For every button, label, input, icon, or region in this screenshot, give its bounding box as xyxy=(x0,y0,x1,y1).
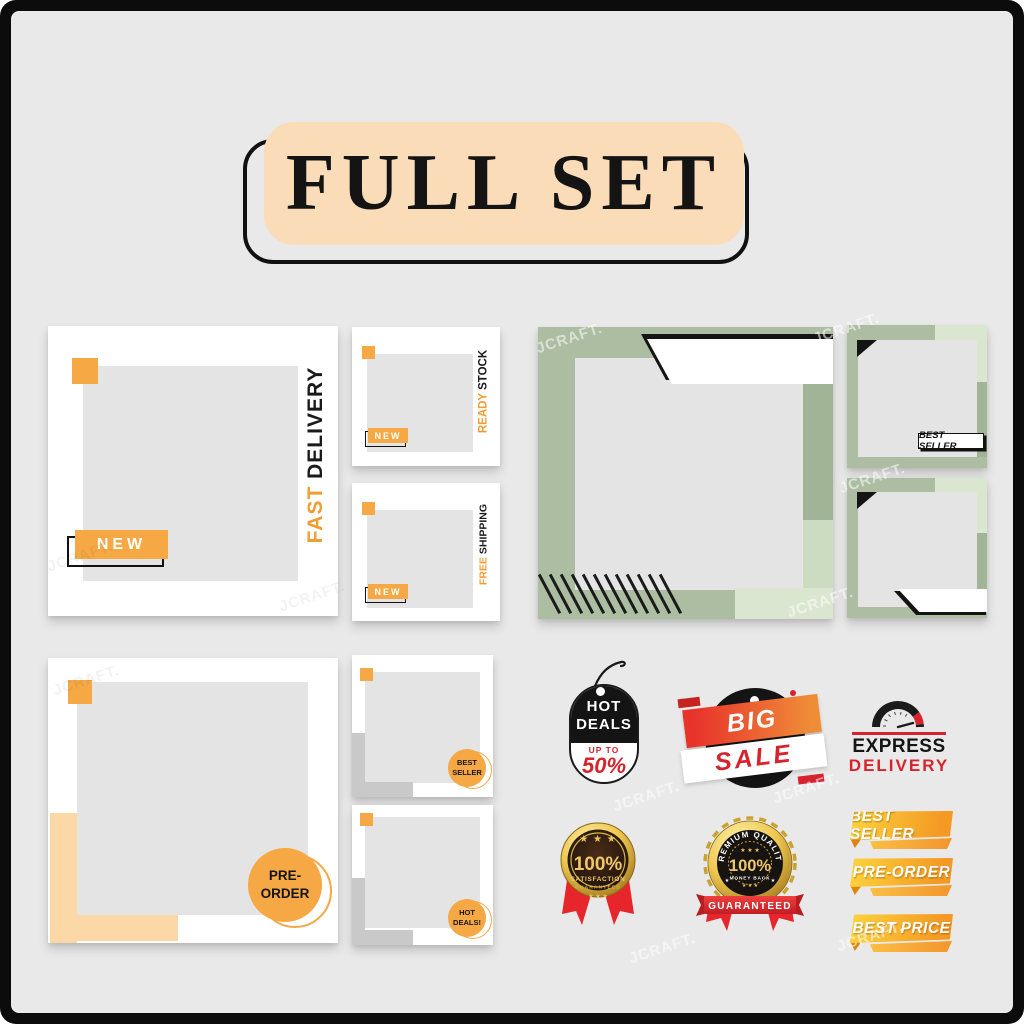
express-word1: EXPRESS xyxy=(845,736,953,758)
satisfaction-line2: GUARANTEED xyxy=(575,885,621,891)
template-card-fast-delivery: FAST DELIVERY NEW xyxy=(48,326,338,616)
satisfaction-line1: SATISFACTION xyxy=(571,876,626,883)
template-card-free-shipping: FREE SHIPPING NEW xyxy=(352,483,500,621)
express-delivery-badge: EXPRESS DELIVERY xyxy=(845,695,953,775)
circle-line2: SELLER xyxy=(452,768,482,778)
ribbon-label: BEST SELLER xyxy=(850,811,953,840)
label-accent-word: FREE xyxy=(478,557,490,585)
poster-canvas: FULL SET FAST DELIVERY NEW READY STOCK N… xyxy=(0,0,1024,1024)
stars-top: ★ ★ ★ xyxy=(740,847,759,854)
vertical-label: FREE SHIPPING xyxy=(478,490,491,600)
ribbon-label: PRE-ORDER xyxy=(850,858,953,887)
circle-line2: ORDER xyxy=(261,885,310,903)
premium-banner-text: GUARANTEED xyxy=(708,901,792,912)
ribbon-pre-order: PRE-ORDER xyxy=(848,855,958,901)
tag-knot-icon xyxy=(596,687,605,696)
best-seller-label: BEST SELLER xyxy=(918,433,984,449)
speedometer-icon xyxy=(862,695,934,732)
tag-line2: DEALS xyxy=(571,716,637,734)
red-underline xyxy=(852,732,946,735)
red-dot-icon xyxy=(790,690,796,696)
orange-square-accent xyxy=(360,668,373,681)
big-sale-badge: BIG SALE xyxy=(680,676,830,791)
circle-line1: BEST xyxy=(457,758,477,768)
gray-l-horizontal xyxy=(352,782,413,797)
stars-bottom: ★ ★ ★ xyxy=(742,883,759,889)
premium-value: 100% xyxy=(729,857,772,875)
premium-sub: MONEY BACK xyxy=(730,876,771,882)
title-plate: FULL SET xyxy=(264,122,744,245)
banner-blank xyxy=(647,339,833,384)
vertical-label: READY STOCK xyxy=(478,337,491,447)
express-word2: DELIVERY xyxy=(845,756,953,776)
orange-square-accent xyxy=(362,502,375,515)
vertical-label: FAST DELIVERY xyxy=(304,360,328,550)
template-card-pre-order: PRE- ORDER xyxy=(48,658,338,943)
pre-order-circle: PRE- ORDER xyxy=(248,848,322,922)
stars-top: ★ ★ ★ xyxy=(579,834,616,845)
tag-top: HOT DEALS xyxy=(571,686,637,743)
label-dark-word: DELIVERY xyxy=(304,367,327,479)
red-accent xyxy=(678,697,701,709)
template-card-green-best-seller: BEST SELLER xyxy=(847,325,987,468)
green-strip-light xyxy=(803,520,833,595)
stars-bottom: ★ ★ ★ xyxy=(588,893,607,900)
hot-deals-tag: HOT DEALS UP TO 50% xyxy=(569,684,639,784)
label-accent-word: READY xyxy=(478,393,490,433)
ribbon-tail xyxy=(870,885,952,896)
best-seller-circle: BEST SELLER xyxy=(448,749,486,787)
orange-square-accent xyxy=(362,346,375,359)
hot-deals-circle: HOT DEALS! xyxy=(448,899,486,937)
satisfaction-guaranteed-badge: ★ ★ ★ 100% SATISFACTION GUARANTEED ★ ★ ★ xyxy=(553,808,643,936)
circle-line1: HOT xyxy=(459,908,475,918)
star-icon: ★ xyxy=(771,878,776,884)
ribbon-tail xyxy=(870,941,952,952)
image-placeholder xyxy=(575,358,803,590)
orange-square-accent xyxy=(72,358,98,384)
circle-line1: PRE- xyxy=(269,867,301,885)
satisfaction-value: 100% xyxy=(574,854,623,875)
template-card-green-large xyxy=(538,327,833,619)
premium-quality-badge: PREMIUM QUALITY ★ ★ ★ ★ ★ 100% MONEY BAC… xyxy=(694,806,806,938)
new-badge: NEW xyxy=(368,584,408,599)
peach-l-horizontal xyxy=(50,915,178,941)
template-card-ready-stock: READY STOCK NEW xyxy=(352,327,500,466)
template-card-green-banner xyxy=(847,478,987,618)
orange-square-accent xyxy=(360,813,373,826)
ribbon-tail xyxy=(870,838,952,849)
new-badge: NEW xyxy=(368,428,408,443)
tag-line1: HOT xyxy=(571,698,637,716)
template-card-best-seller-small: BEST SELLER xyxy=(352,655,493,797)
label-accent-word: FAST xyxy=(304,486,327,544)
page-title: FULL SET xyxy=(286,138,722,229)
hatch-lines xyxy=(548,572,684,618)
template-card-hot-deals-small: HOT DEALS! xyxy=(352,805,493,945)
label-dark-word: SHIPPING xyxy=(478,504,490,554)
ribbon-best-seller: BEST SELLER xyxy=(848,808,958,854)
green-strip-dark xyxy=(803,382,833,520)
gray-l-horizontal xyxy=(352,930,413,945)
label-dark-word: STOCK xyxy=(478,350,490,390)
circle-line2: DEALS! xyxy=(453,918,481,928)
tag-value: 50% xyxy=(571,753,637,779)
